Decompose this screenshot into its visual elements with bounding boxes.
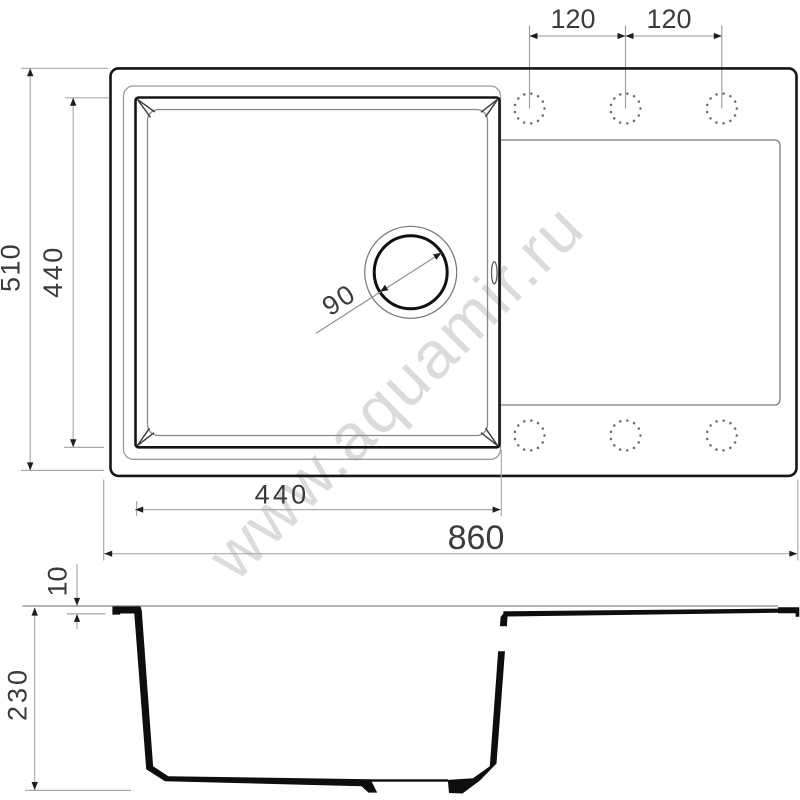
svg-text:440: 440 [255, 479, 310, 509]
svg-text:860: 860 [448, 519, 505, 557]
svg-text:230: 230 [2, 667, 32, 721]
svg-text:120: 120 [550, 4, 595, 34]
svg-text:120: 120 [646, 4, 691, 34]
svg-text:510: 510 [0, 243, 25, 292]
svg-text:440: 440 [38, 245, 68, 298]
svg-text:10: 10 [43, 566, 73, 596]
